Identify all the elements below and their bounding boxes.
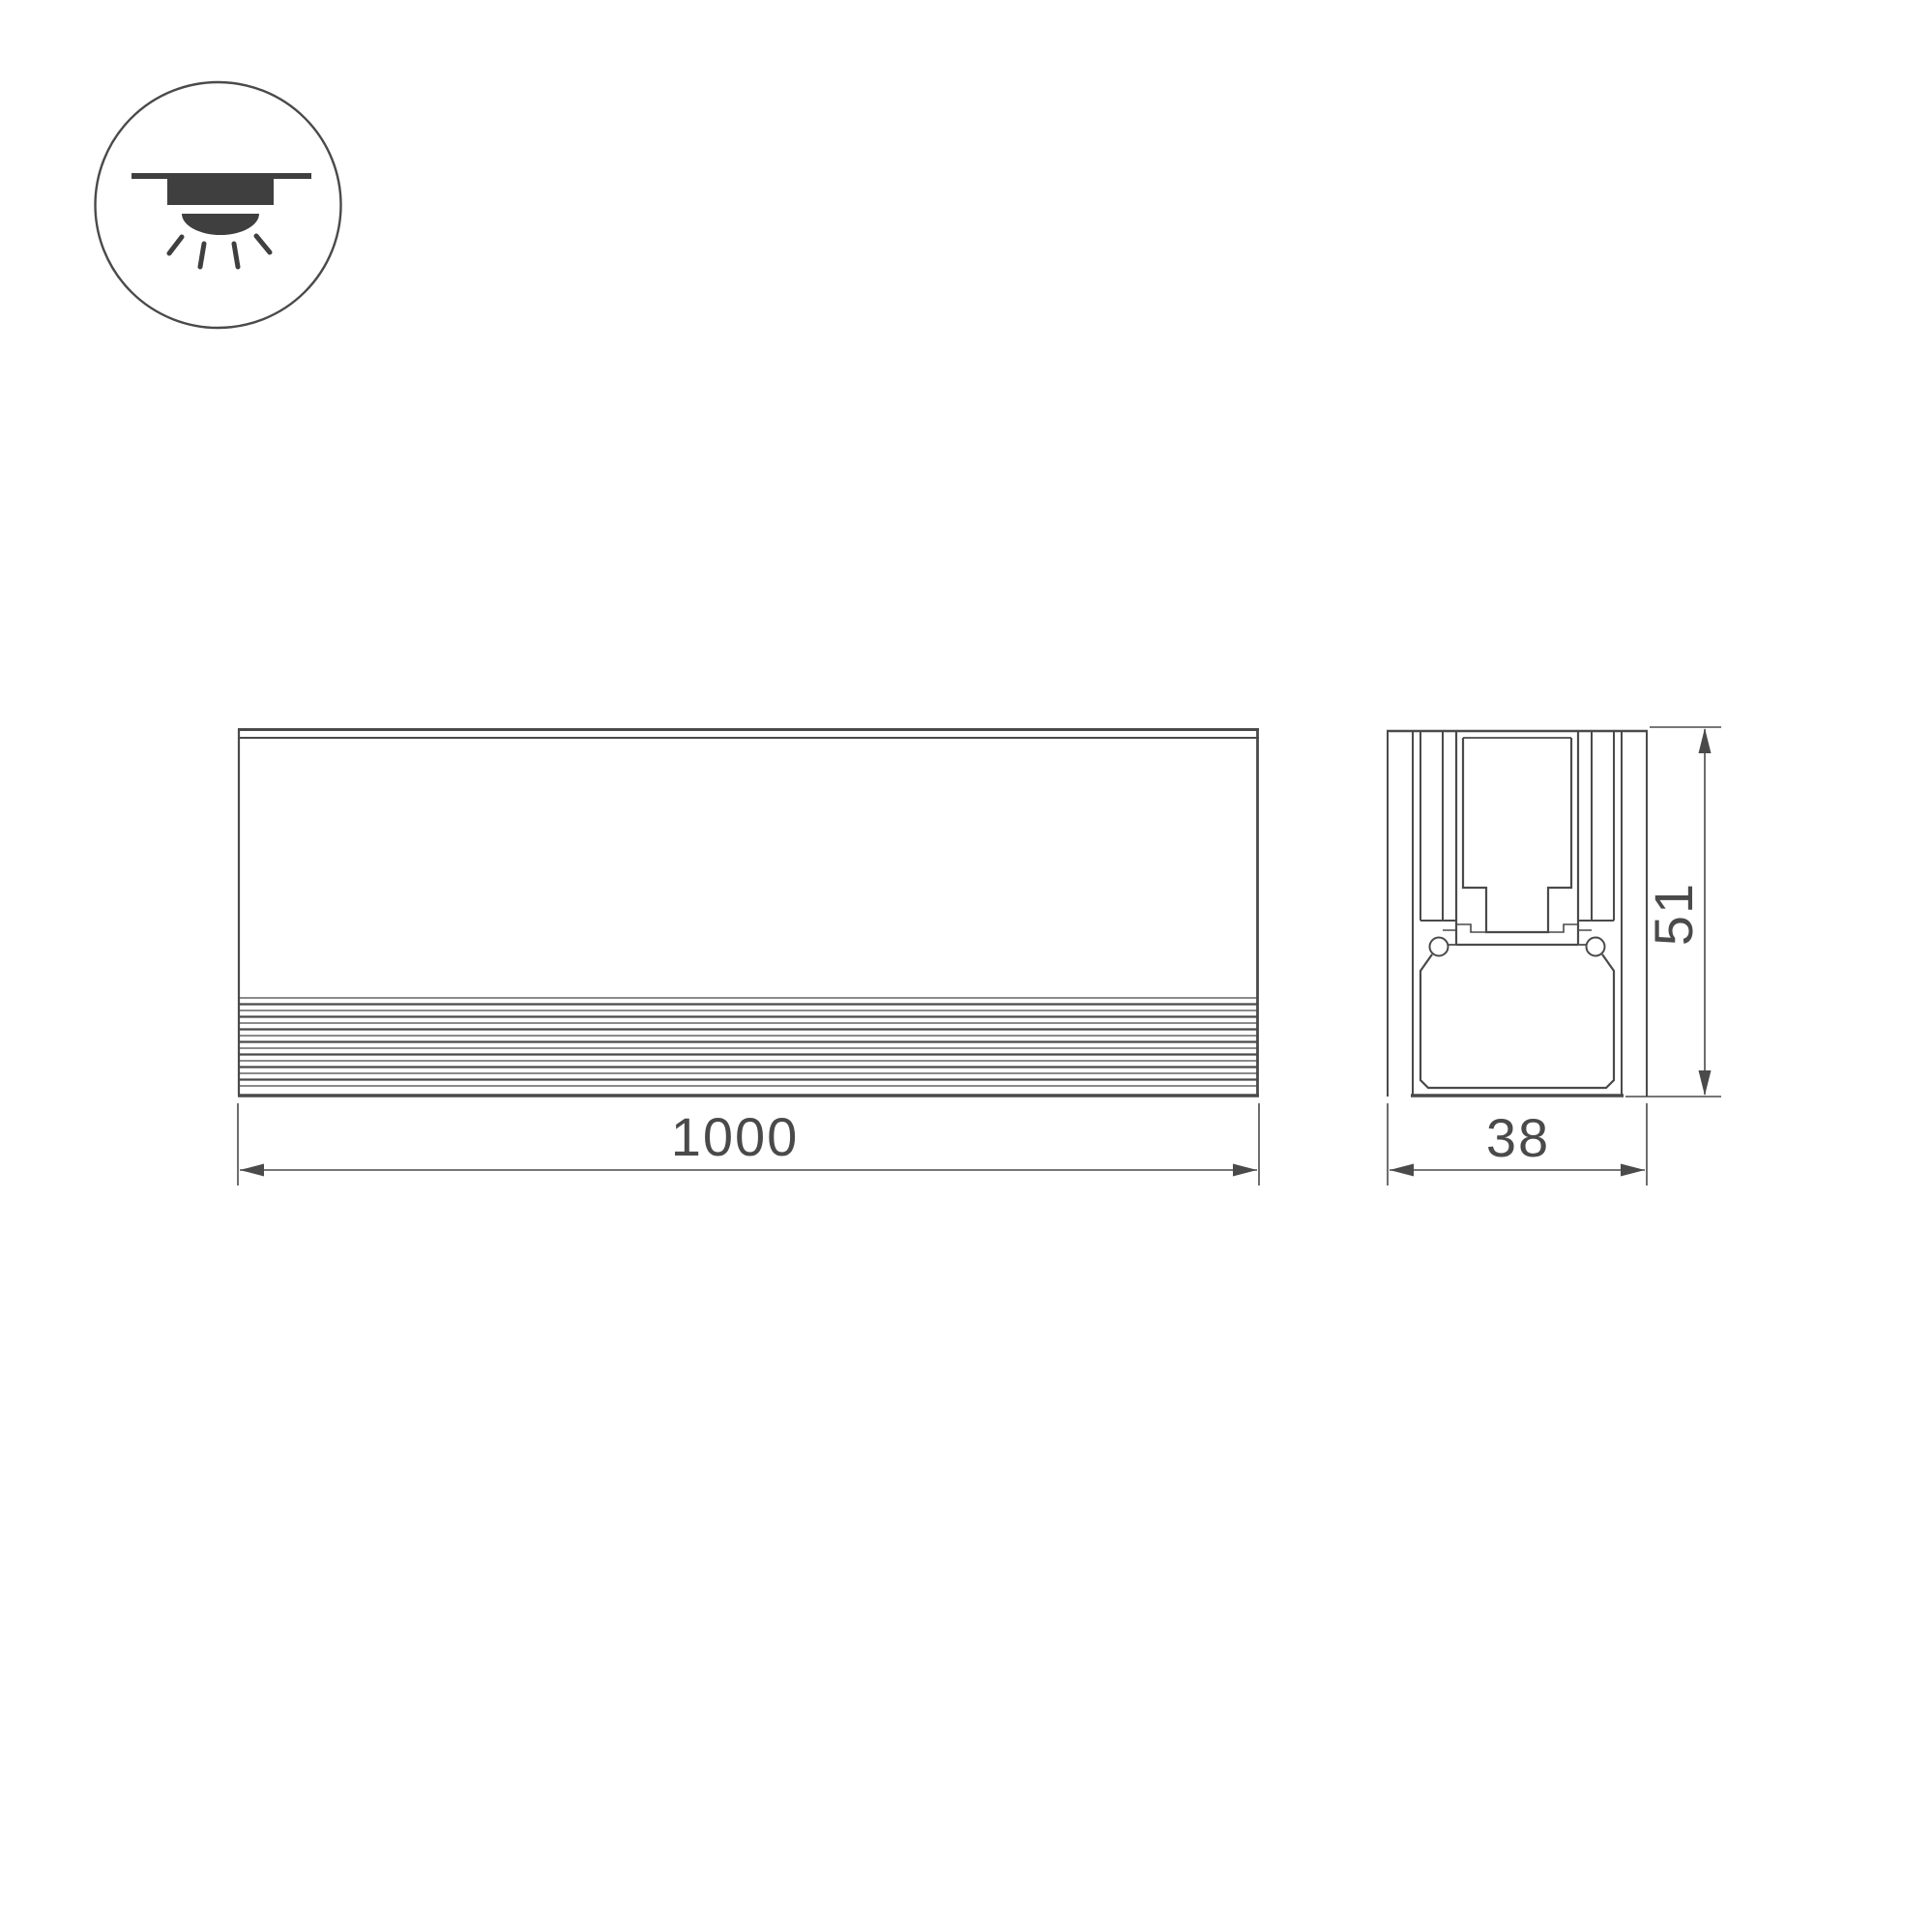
drawing-linework <box>0 0 1932 1932</box>
length-arrow-left <box>240 1164 264 1177</box>
dimension-length-label: 1000 <box>638 1109 832 1165</box>
section-outer-fins <box>1388 731 1647 1097</box>
technical-drawing-canvas: 1000 38 51 <box>0 0 1932 1932</box>
light-rays <box>169 236 270 267</box>
dimension-height-label: 51 <box>1646 856 1702 972</box>
height-arrow-bottom <box>1699 1070 1712 1096</box>
dimension-width-label: 38 <box>1460 1110 1576 1166</box>
channel-cavity <box>1463 738 1571 932</box>
section-view-linework <box>1387 731 1648 1097</box>
hatch-lines-thick <box>240 1005 1257 1080</box>
lower-cavity-outline <box>1420 954 1614 1088</box>
front-view-linework <box>238 729 1259 1096</box>
height-arrow-top <box>1699 728 1712 753</box>
lamp-dome <box>182 214 259 235</box>
length-arrow-right <box>1233 1164 1257 1177</box>
section-inner-walls <box>1420 731 1614 921</box>
recessed-downlight-icon <box>96 82 341 328</box>
section-outer-walls <box>1413 731 1622 1096</box>
clip-notch-left <box>1430 938 1449 956</box>
recessed-housing <box>167 177 274 205</box>
channel-foot-lips <box>1456 924 1578 932</box>
width-arrow-right <box>1621 1164 1645 1177</box>
channel-outer-surface <box>1456 732 1578 945</box>
clip-notch-right <box>1587 938 1605 956</box>
width-arrow-left <box>1390 1164 1414 1177</box>
